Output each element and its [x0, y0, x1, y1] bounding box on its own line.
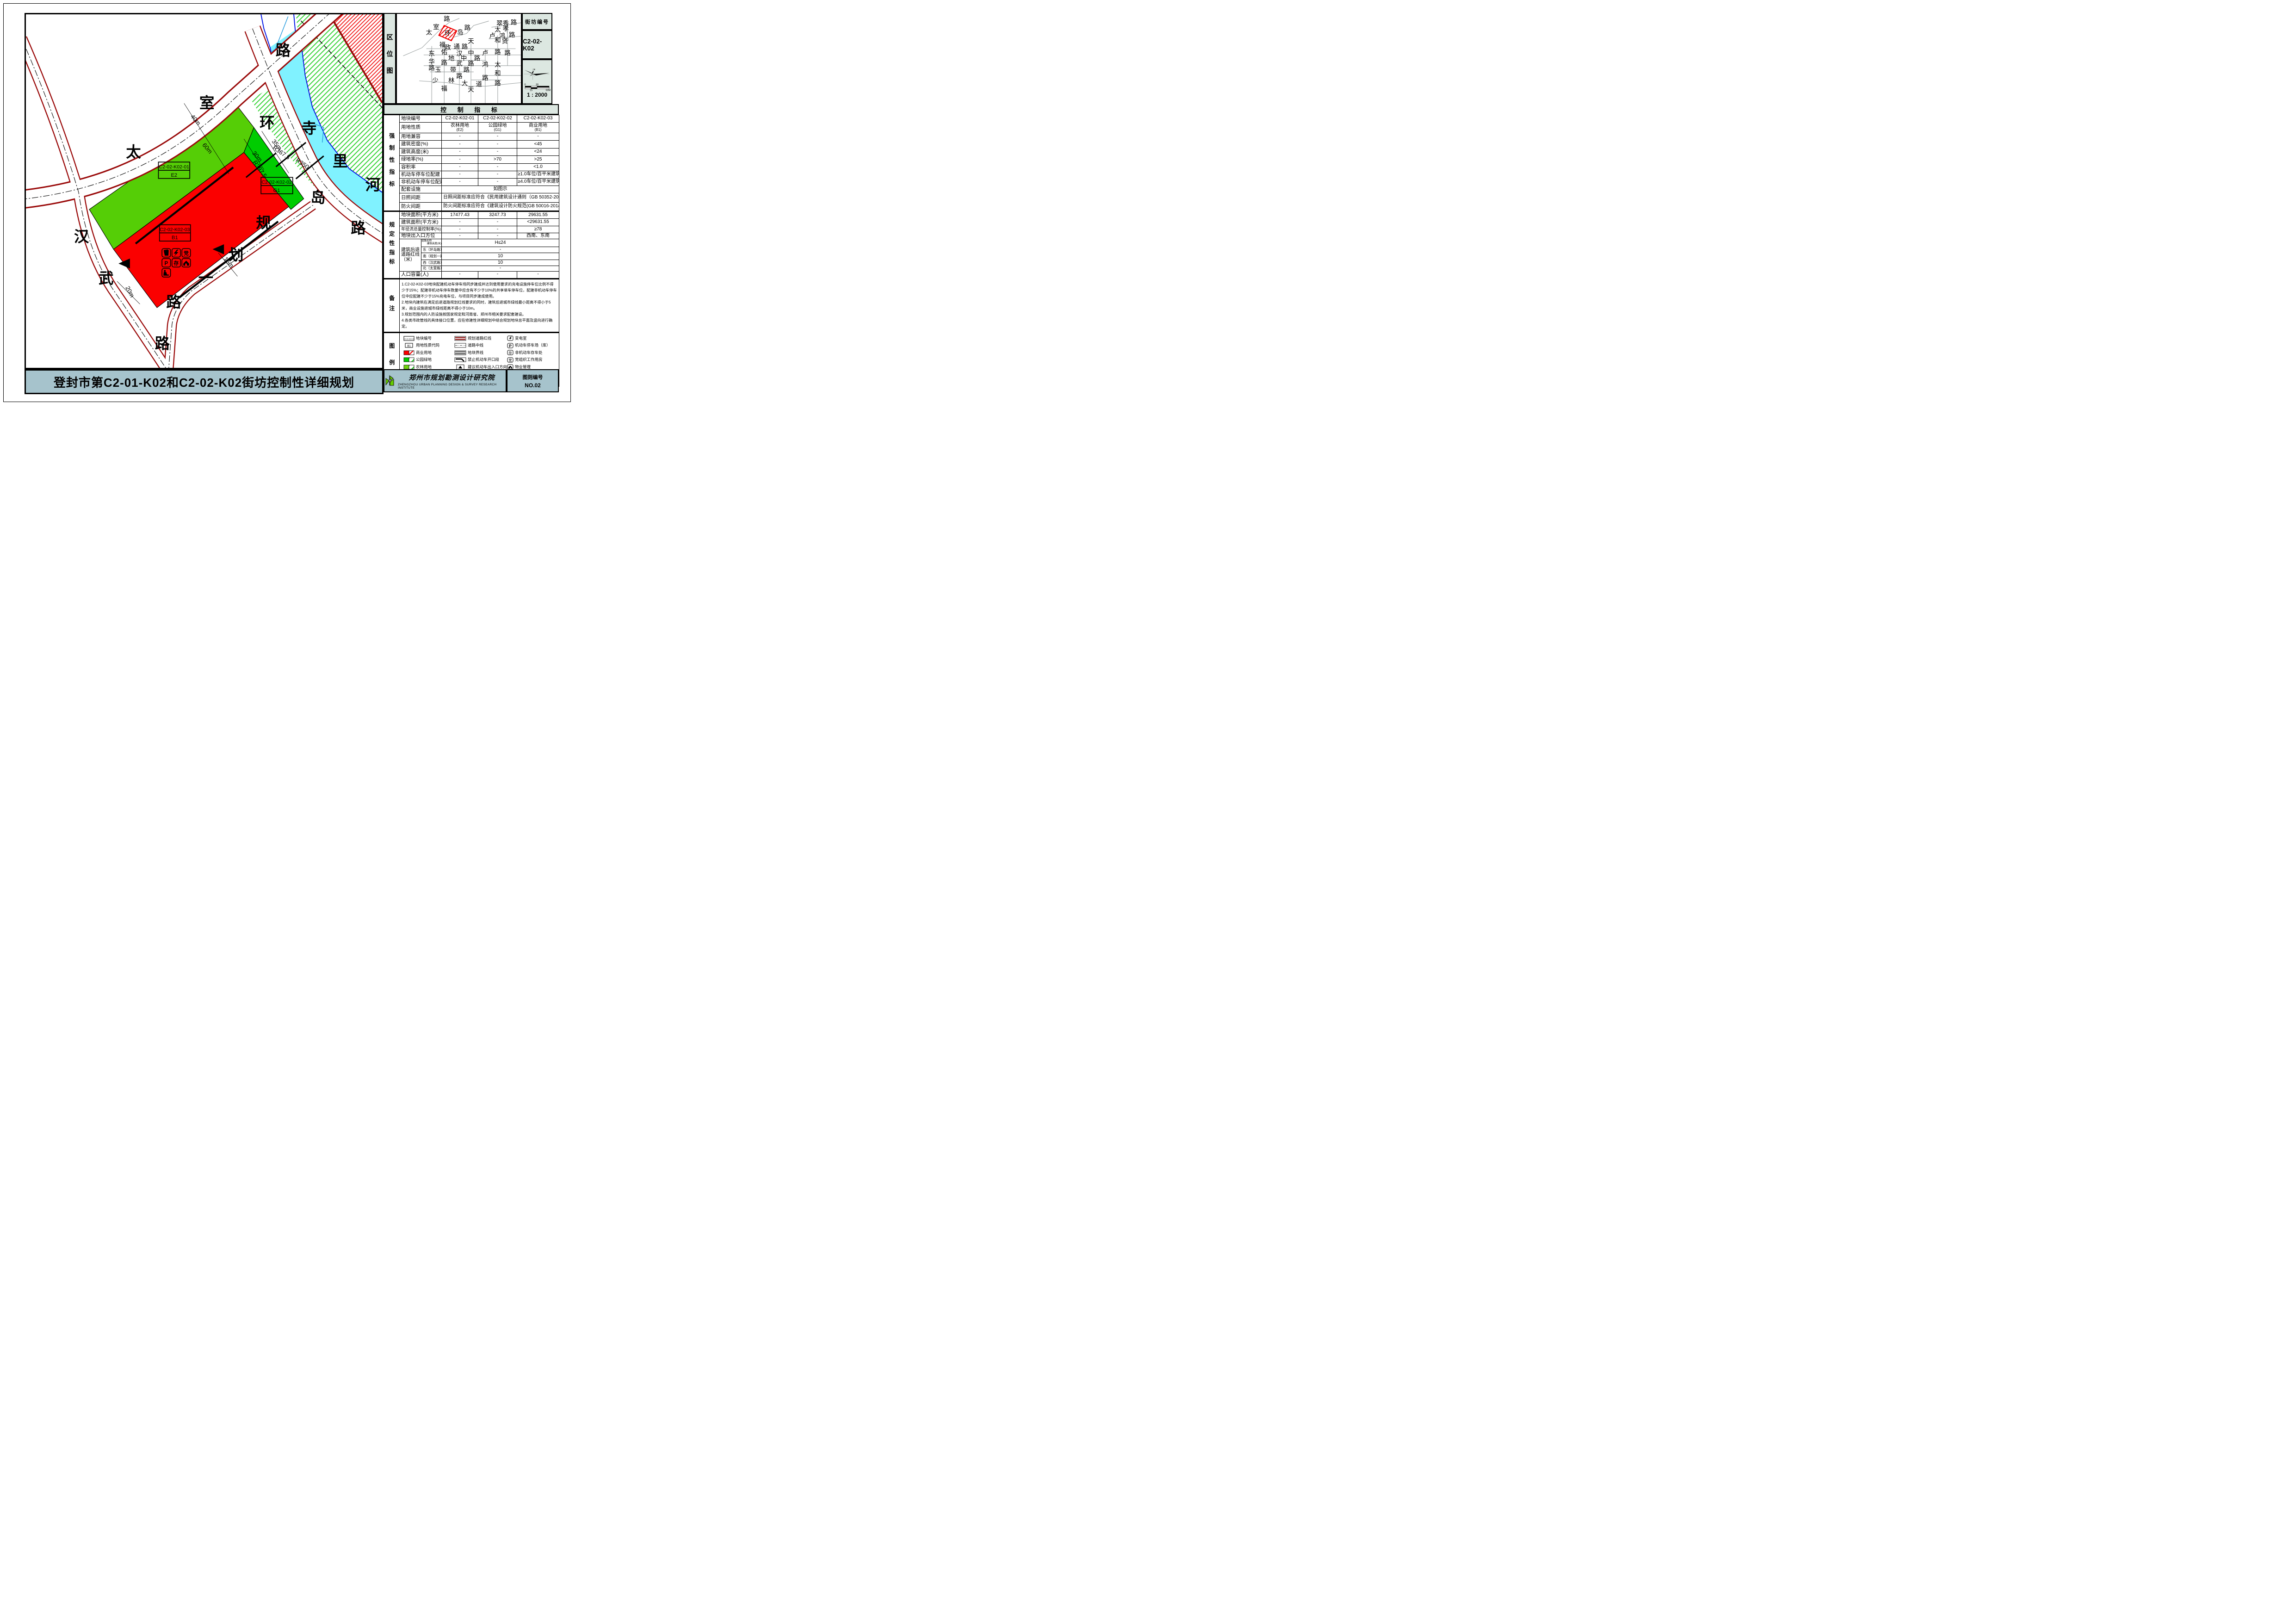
- cell-value: -: [442, 133, 478, 141]
- svg-text:天: 天: [468, 38, 474, 45]
- svg-text:东: 东: [428, 50, 434, 57]
- cell-value: C2-02-K02-02: [478, 115, 517, 123]
- svg-text:N: N: [533, 68, 535, 70]
- svg-text:党: 党: [184, 250, 189, 256]
- cell-value: C2-02-K02-01: [442, 115, 478, 123]
- svg-text:和: 和: [495, 70, 501, 77]
- svg-text:路: 路: [462, 43, 468, 50]
- cell-value: -: [442, 179, 478, 186]
- row-label: 建筑面积(平方米): [400, 219, 442, 226]
- cell-value: ≥1.0车位/百平米建筑面积: [517, 171, 559, 179]
- sheet-number-label: 图则编号: [523, 373, 543, 381]
- cell-value: -: [442, 219, 478, 226]
- plan-map-svg: C2-02-K02-01 E2 C2-02-K02-02 G1 C2-02-K0…: [26, 14, 382, 368]
- legend-car-park: P 机动车停车场（库）: [507, 342, 551, 349]
- institute-name-cn: 郑州市规划勘测设计研究院: [409, 372, 495, 382]
- sheet-title: 登封市第C2-01-K02和C2-02-K02街坊控制性详细规划: [54, 373, 354, 390]
- svg-text:路: 路: [428, 65, 435, 72]
- row-label: 配套设施: [400, 186, 442, 193]
- svg-text:武: 武: [99, 270, 113, 287]
- svg-text:C2-02-K02-01: C2-02-K02-01: [404, 338, 415, 340]
- cell-value: 西南、东南: [517, 233, 559, 239]
- cell-value: 防火间距标准应符合《建筑设计防火规范(GB 50016-2014)》有关规定。: [442, 203, 559, 211]
- svg-text:里: 里: [333, 153, 347, 170]
- legend-road-redline: 规划道路红线: [454, 335, 507, 342]
- cell-value: <1.0: [517, 164, 559, 171]
- svg-text:少: 少: [432, 77, 438, 84]
- cell-value: -: [442, 149, 478, 156]
- cell-value: -: [442, 156, 478, 164]
- svg-text:林: 林: [448, 77, 455, 84]
- setback-road: 东（环岛路）: [421, 247, 442, 253]
- minimap-road-labels: 路翠秀路室太环岛路太孝卢鸿路和贤天福政通路东佑汉中卢路路地中路华路武路鸿太路玉带…: [426, 15, 517, 93]
- svg-text:路: 路: [474, 55, 481, 62]
- svg-text:存: 存: [174, 260, 179, 266]
- svg-text:地: 地: [448, 55, 455, 62]
- row-label: 地块面积(平方米): [400, 211, 442, 219]
- svg-text:道: 道: [476, 81, 482, 87]
- cell-value: -: [478, 133, 517, 141]
- svg-text:卢: 卢: [482, 50, 488, 56]
- cell-value: -: [442, 141, 478, 149]
- sheet-title-bar: 登封市第C2-01-K02和C2-02-K02街坊控制性详细规划: [25, 369, 384, 394]
- cell-value: 10: [442, 260, 559, 266]
- svg-text:路: 路: [276, 42, 291, 59]
- notes-content: 1.C2-02-K02-03地块配建机动车停车场同步建成并达到使用要求的充电设施…: [400, 279, 559, 332]
- cell-value: <29631.55: [517, 219, 559, 226]
- svg-text:通: 通: [453, 43, 460, 50]
- cell-value: -: [442, 171, 478, 179]
- legend-park-green: 公园绿地: [403, 356, 439, 364]
- cell-value: 17477.43: [442, 211, 478, 219]
- svg-text:寺: 寺: [302, 120, 316, 137]
- svg-text:玉: 玉: [435, 66, 441, 73]
- institute-bar: 郑州市规划勘测设计研究院 ZHENGZHOU URBAN PLANNING DE…: [384, 369, 507, 392]
- svg-text:C2-02-K02-03: C2-02-K02-03: [160, 228, 190, 233]
- svg-text:带: 带: [450, 66, 456, 73]
- main-plan-map: C2-02-K02-01 E2 C2-02-K02-02 G1 C2-02-K0…: [25, 13, 384, 369]
- sheet-number-value: NO.02: [525, 382, 541, 389]
- cell-value: -: [478, 171, 517, 179]
- svg-text:路: 路: [509, 31, 515, 38]
- row-label: 地块编号: [400, 115, 442, 123]
- svg-text:P: P: [165, 261, 168, 266]
- cell-value: -: [517, 133, 559, 141]
- cell-value: <24: [517, 149, 559, 156]
- svg-text:路: 路: [166, 294, 181, 310]
- svg-text:15: 15: [530, 89, 532, 91]
- svg-text:路: 路: [464, 66, 470, 73]
- cell-value: 3247.73: [478, 211, 517, 219]
- cell-value: <45: [517, 141, 559, 149]
- row-label: 建筑高度(米): [400, 149, 442, 156]
- svg-text:党: 党: [509, 358, 512, 362]
- cell-value: ≥4.0车位/百平米建筑面积: [517, 179, 559, 186]
- cell-value: 农林用地(E2): [442, 123, 478, 133]
- row-label: 容积率: [400, 164, 442, 171]
- legend-no-opening: 禁止机动车开口段: [454, 356, 507, 364]
- svg-text:路: 路: [441, 59, 447, 66]
- setback-road: 西（汉武路）: [421, 260, 442, 266]
- svg-text:路: 路: [511, 19, 517, 26]
- section-regulatory: 规定性指标: [384, 211, 400, 279]
- svg-text:天: 天: [468, 86, 474, 93]
- legend-plot-number: C2-02-K02-01 地块编号: [403, 335, 439, 342]
- svg-text:鸿: 鸿: [482, 61, 488, 68]
- cell-value: -: [478, 141, 517, 149]
- cell-value: -: [442, 233, 478, 239]
- svg-text:和: 和: [495, 37, 501, 44]
- cell-value: 日照间距标准应符合《民用建筑设计通则（GB 50352-2005）》有关规定。: [442, 193, 559, 203]
- svg-text:室: 室: [433, 23, 439, 31]
- svg-text:C2-02-K02-02: C2-02-K02-02: [261, 180, 291, 185]
- row-label: 绿地率(%): [400, 156, 442, 164]
- row-label: 年径流总量控制率(%): [400, 226, 442, 233]
- cell-value: -: [442, 226, 478, 233]
- cell-value: 公园绿地(G1): [478, 123, 517, 133]
- cell-value: 10: [442, 253, 559, 260]
- svg-text:中: 中: [468, 50, 474, 56]
- compass-and-scale: N 0 30 15 60M 1 : 2000: [522, 59, 552, 104]
- svg-text:G1: G1: [273, 188, 280, 193]
- cell-value: 如图示: [442, 186, 559, 193]
- svg-text:B1: B1: [172, 235, 178, 241]
- setback-height-class: H≤24: [442, 239, 559, 247]
- svg-text:太: 太: [126, 144, 141, 161]
- row-label: 人口容量(人): [400, 271, 442, 279]
- cell-value: 商业用地(B1): [517, 123, 559, 133]
- svg-text:规: 规: [256, 215, 271, 231]
- row-label: 机动车停车位配建: [400, 171, 442, 179]
- cell-value: -: [478, 219, 517, 226]
- location-minimap: 路翠秀路室太环岛路太孝卢鸿路和贤天福政通路东佑汉中卢路路地中路华路武路鸿太路玉带…: [396, 13, 522, 104]
- svg-text:路: 路: [495, 49, 501, 56]
- section-mandatory: 强制性指标: [384, 115, 400, 211]
- row-label: 地块出入口方位: [400, 233, 442, 239]
- svg-text:0: 0: [524, 83, 526, 86]
- institute-logo: [384, 375, 396, 387]
- svg-text:路: 路: [495, 80, 501, 87]
- svg-text:太: 太: [426, 29, 433, 36]
- svg-text:路: 路: [351, 220, 366, 236]
- row-label: 日照间距: [400, 193, 442, 203]
- svg-text:佑: 佑: [441, 49, 447, 56]
- svg-text:E2: E2: [171, 173, 177, 178]
- cell-value: -: [517, 271, 559, 279]
- row-label: 建筑密度(%): [400, 141, 442, 149]
- svg-text:B1: B1: [407, 345, 411, 348]
- setback-road: 南（规划一路）: [421, 253, 442, 260]
- section-notes: 备注: [384, 279, 400, 332]
- cell-value: -: [478, 233, 517, 239]
- svg-text:贤: 贤: [502, 38, 508, 45]
- cell-value: -: [478, 226, 517, 233]
- legend-bike-storage: 存 非机动车存车处: [507, 349, 551, 357]
- svg-text:一: 一: [198, 270, 213, 286]
- svg-text:孝: 孝: [502, 25, 508, 32]
- control-indicators-header: 控 制 指 标: [384, 104, 559, 115]
- legend-substation: 变电室: [507, 335, 551, 342]
- svg-text:P: P: [509, 343, 512, 348]
- row-label: 防火间距: [400, 203, 442, 211]
- legend-landuse-code: B1 用地性质代码: [403, 342, 439, 349]
- svg-text:室: 室: [199, 94, 214, 111]
- svg-text:汉: 汉: [74, 229, 89, 245]
- institute-name-en: ZHENGZHOU URBAN PLANNING DESIGN & SURVEY…: [398, 383, 506, 390]
- north-arrow-icon: N: [523, 66, 551, 82]
- setback-label: 建筑后退道路红线（米）: [400, 239, 421, 272]
- svg-text:环: 环: [445, 30, 451, 37]
- svg-text:岛: 岛: [310, 189, 325, 206]
- svg-text:太: 太: [495, 61, 501, 68]
- location-map-title: 区位图: [384, 13, 396, 104]
- svg-text:路: 路: [464, 25, 471, 31]
- block-number-label: 街坊编号: [522, 13, 552, 30]
- cell-value: -: [442, 271, 478, 279]
- row-label: 用地性质: [400, 123, 442, 133]
- cell-value: >70: [478, 156, 517, 164]
- cell-value: ≥78: [517, 226, 559, 233]
- scale-text: 1 : 2000: [527, 92, 547, 98]
- svg-text:存: 存: [509, 351, 512, 355]
- control-indicators-table: 强制性指标 地块编号 C2-02-K02-01 C2-02-K02-02 C2-…: [384, 115, 559, 387]
- cell-value: -: [442, 247, 559, 253]
- svg-text:20m: 20m: [124, 285, 136, 299]
- legend-plot-boundary: 地块界线: [454, 349, 507, 357]
- svg-text:武: 武: [456, 60, 463, 67]
- cell-value: >25: [517, 156, 559, 164]
- plan-sheet: C2-02-K02-01 E2 C2-02-K02-02 G1 C2-02-K0…: [0, 0, 574, 406]
- svg-text:环: 环: [260, 114, 274, 131]
- svg-text:路: 路: [155, 335, 170, 352]
- svg-text:60M: 60M: [546, 89, 551, 91]
- cell-value: -: [478, 271, 517, 279]
- setback-road: 北（太室路）: [421, 266, 442, 272]
- row-label: 非机动车停车位配建: [400, 179, 442, 186]
- cell-value: C2-02-K02-03: [517, 115, 559, 123]
- sheet-number-bar: 图则编号 NO.02: [507, 369, 559, 392]
- svg-text:30: 30: [536, 83, 538, 86]
- svg-text:C2-02-K02-01: C2-02-K02-01: [159, 165, 189, 170]
- svg-text:路: 路: [456, 73, 463, 80]
- cell-value: -: [442, 164, 478, 171]
- svg-text:岛: 岛: [457, 29, 463, 36]
- scale-bar: 0 30 15 60M: [523, 83, 551, 91]
- legend-commercial: 商业用地: [403, 349, 439, 357]
- legend-road-centerline: 道路中线: [454, 342, 507, 349]
- svg-text:大: 大: [462, 80, 468, 87]
- cell-value: 29631.55: [517, 211, 559, 219]
- svg-text:河: 河: [365, 176, 380, 193]
- cell-value: -: [442, 266, 559, 272]
- legend-party-room: 党 党组织工作用房: [507, 356, 551, 364]
- row-label: 用地兼容: [400, 133, 442, 141]
- cell-value: -: [478, 164, 517, 171]
- svg-text:路: 路: [444, 15, 450, 22]
- cell-value: -: [478, 149, 517, 156]
- svg-text:路: 路: [504, 50, 511, 56]
- svg-text:路: 路: [482, 74, 489, 81]
- svg-text:福: 福: [441, 85, 447, 92]
- setback-diagonal-header: 建筑高度(米)道路名称: [421, 239, 442, 247]
- cell-value: -: [478, 179, 517, 186]
- block-number-value: C2-02-K02: [522, 30, 552, 59]
